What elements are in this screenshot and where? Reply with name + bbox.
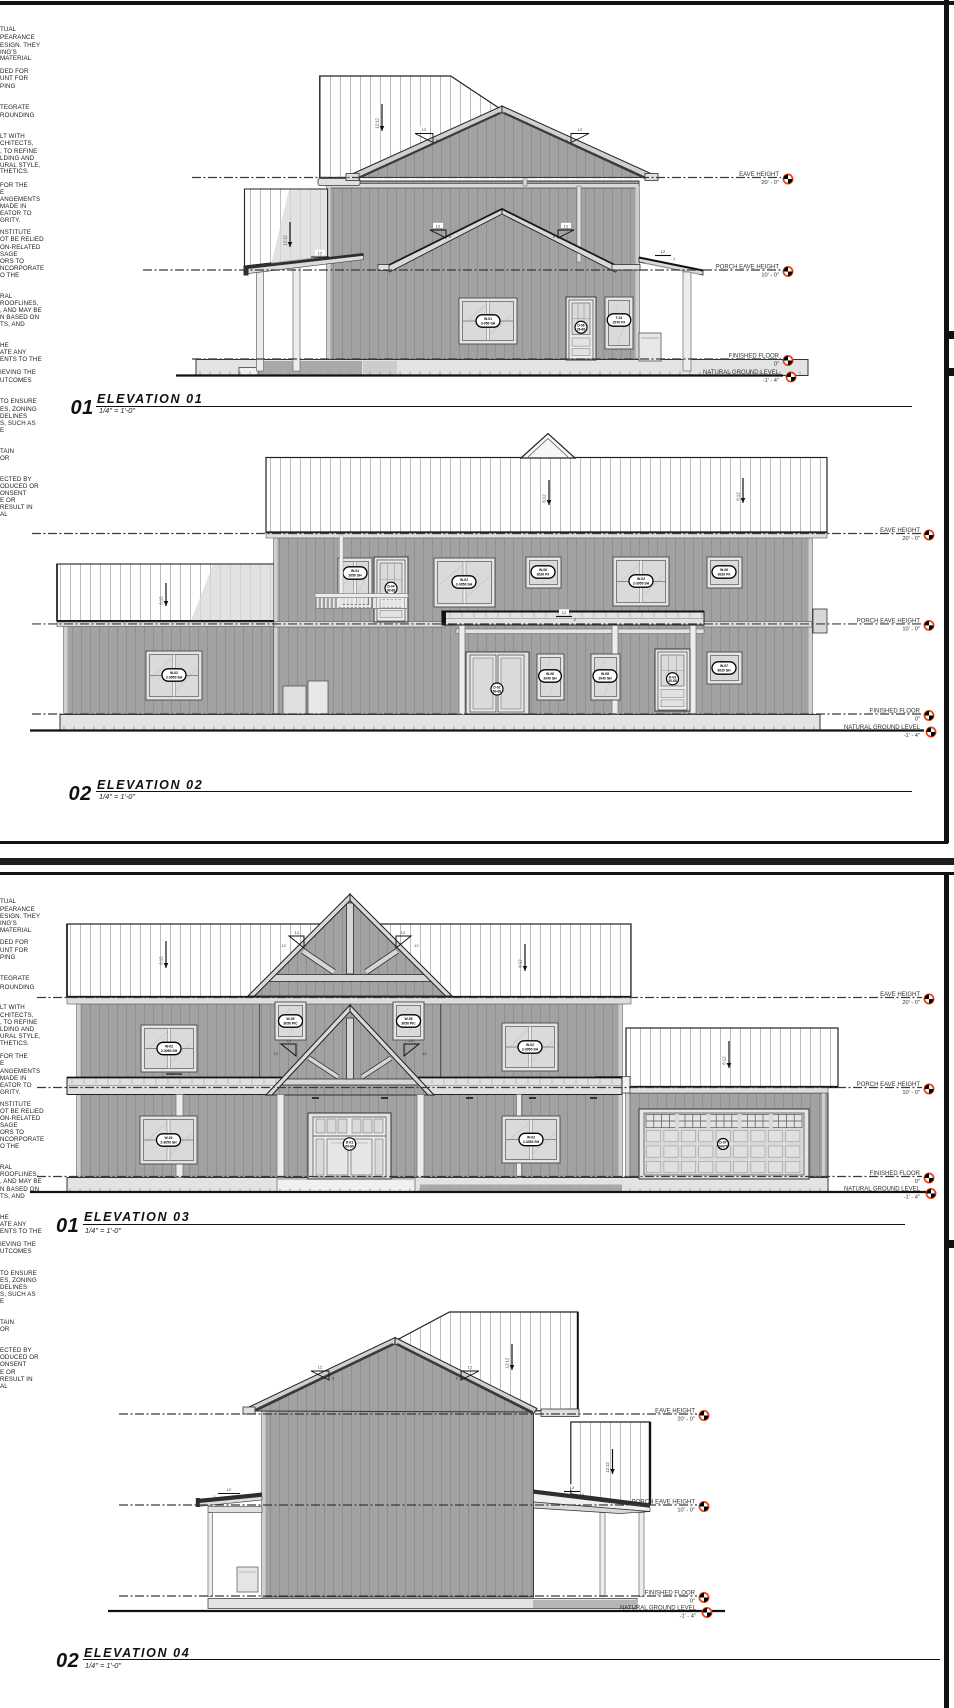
svg-text:12:12: 12:12 (505, 1357, 510, 1368)
svg-text:1: 1 (673, 257, 675, 261)
svg-text:2: 2 (582, 1493, 584, 1497)
svg-text:3050 PIC: 3050 PIC (283, 1022, 298, 1026)
svg-text:3050 PIC: 3050 PIC (401, 1022, 416, 1026)
svg-text:16070: 16070 (718, 1144, 727, 1148)
svg-text:EAVE HEIGHT: EAVE HEIGHT (655, 1408, 695, 1414)
svg-text:3020 FX: 3020 FX (537, 573, 551, 577)
svg-text:FINISHED FLOOR: FINISHED FLOOR (729, 353, 780, 359)
svg-text:EAVE HEIGHT: EAVE HEIGHT (880, 528, 920, 534)
svg-text:6:12: 6:12 (736, 492, 741, 501)
svg-text:10' - 0": 10' - 0" (761, 272, 779, 278)
svg-text:12: 12 (287, 1038, 292, 1043)
svg-text:12: 12 (273, 1051, 278, 1056)
svg-text:2-3050 SH: 2-3050 SH (160, 1141, 177, 1145)
svg-text:PORCH EAVE HEIGHT: PORCH EAVE HEIGHT (857, 618, 921, 624)
svg-text:6:12: 6:12 (542, 494, 547, 503)
svg-text:12: 12 (564, 223, 569, 228)
svg-text:2-3050 SH: 2-3050 SH (633, 582, 650, 586)
svg-text:-1' - 4": -1' - 4" (904, 1194, 920, 1200)
svg-text:6: 6 (456, 1377, 458, 1381)
svg-text:2070 FX: 2070 FX (613, 321, 627, 325)
svg-text:W-02: W-02 (526, 1043, 534, 1047)
svg-text:0": 0" (690, 1598, 695, 1604)
svg-text:W-08: W-08 (546, 672, 554, 676)
svg-text:12: 12 (281, 943, 286, 948)
svg-text:2-3050 SH: 2-3050 SH (522, 1048, 539, 1052)
svg-text:60-68: 60-68 (493, 689, 502, 693)
svg-text:6:12: 6:12 (159, 596, 164, 605)
svg-text:W-02: W-02 (527, 1136, 535, 1140)
svg-text:FINISHED FLOOR: FINISHED FLOOR (645, 1590, 696, 1596)
svg-text:12: 12 (436, 223, 441, 228)
svg-text:26-68: 26-68 (577, 328, 586, 332)
svg-text:W-01: W-01 (484, 317, 492, 321)
svg-text:6:12: 6:12 (159, 956, 164, 965)
svg-text:W-08: W-08 (601, 672, 609, 676)
svg-text:2050 SH: 2050 SH (348, 574, 362, 578)
svg-text:2-3050 SH: 2-3050 SH (161, 1049, 178, 1053)
svg-text:10' - 0": 10' - 0" (902, 626, 920, 632)
svg-text:NATURAL GROUND LEVEL: NATURAL GROUND LEVEL (620, 1605, 697, 1611)
svg-text:FINISHED FLOOR: FINISHED FLOOR (870, 1171, 921, 1177)
svg-text:12: 12 (661, 249, 666, 254)
svg-text:12:12: 12:12 (375, 118, 380, 129)
svg-text:3-050 SH: 3-050 SH (481, 322, 496, 326)
svg-text:2: 2 (307, 259, 309, 263)
svg-text:12: 12 (422, 1051, 427, 1056)
svg-text:PORCH EAVE HEIGHT: PORCH EAVE HEIGHT (716, 264, 780, 270)
svg-text:W-02: W-02 (164, 1136, 172, 1140)
svg-text:W-02: W-02 (165, 1045, 173, 1049)
svg-text:6:12: 6:12 (518, 959, 523, 968)
svg-text:-1' - 4": -1' - 4" (904, 733, 920, 739)
svg-text:2-3050 SH: 2-3050 SH (456, 583, 473, 587)
svg-text:10' - 0": 10' - 0" (902, 1090, 920, 1096)
svg-text:60-80: 60-80 (345, 1144, 354, 1148)
svg-text:NATURAL GROUND LEVEL: NATURAL GROUND LEVEL (844, 725, 921, 731)
svg-text:2: 2 (162, 1076, 164, 1080)
svg-text:W-06: W-06 (720, 568, 728, 572)
svg-text:W-05: W-05 (404, 1017, 412, 1021)
svg-text:20' - 0": 20' - 0" (902, 1000, 920, 1006)
svg-text:12: 12 (578, 127, 583, 132)
svg-text:12: 12 (295, 930, 300, 935)
svg-text:T-01: T-01 (616, 316, 623, 320)
svg-text:12: 12 (409, 1038, 414, 1043)
svg-text:6: 6 (449, 235, 451, 239)
svg-text:NATURAL GROUND LEVEL: NATURAL GROUND LEVEL (703, 370, 780, 376)
svg-text:W-02: W-02 (460, 578, 468, 582)
svg-text:2040 SH: 2040 SH (598, 677, 612, 681)
svg-text:PORCH EAVE HEIGHT: PORCH EAVE HEIGHT (857, 1082, 921, 1088)
svg-text:12:12: 12:12 (283, 235, 288, 246)
svg-text:20' - 0": 20' - 0" (761, 180, 779, 186)
svg-text:3020 FX: 3020 FX (718, 573, 732, 577)
svg-text:FINISHED FLOOR: FINISHED FLOOR (870, 708, 921, 714)
svg-text:12: 12 (570, 1485, 575, 1490)
svg-text:12:12: 12:12 (605, 1462, 610, 1473)
svg-text:W-02: W-02 (170, 671, 178, 675)
svg-text:12: 12 (562, 610, 567, 615)
svg-text:PORCH EAVE HEIGHT: PORCH EAVE HEIGHT (632, 1499, 696, 1505)
svg-text:W-07: W-07 (720, 664, 728, 668)
svg-text:-1' - 4": -1' - 4" (763, 378, 779, 384)
svg-text:6: 6 (436, 139, 438, 143)
svg-text:0": 0" (915, 1179, 920, 1185)
svg-text:30-68: 30-68 (668, 679, 677, 683)
svg-text:6:12: 6:12 (722, 1056, 727, 1065)
svg-text:20' - 0": 20' - 0" (902, 536, 920, 542)
svg-text:EAVE HEIGHT: EAVE HEIGHT (880, 992, 920, 998)
svg-text:W-04: W-04 (351, 569, 359, 573)
svg-text:12: 12 (401, 930, 406, 935)
svg-text:2: 2 (574, 618, 576, 622)
svg-text:6: 6 (566, 139, 568, 143)
svg-text:2-3050 SH: 2-3050 SH (166, 676, 183, 680)
svg-text:12: 12 (468, 1364, 473, 1369)
svg-text:12: 12 (227, 1487, 232, 1492)
svg-text:0": 0" (915, 716, 920, 722)
svg-text:2040 SH: 2040 SH (543, 677, 557, 681)
svg-text:12: 12 (422, 127, 427, 132)
svg-text:2-3050 SH: 2-3050 SH (523, 1140, 540, 1144)
svg-text:W-02: W-02 (637, 577, 645, 581)
svg-text:NATURAL GROUND LEVEL: NATURAL GROUND LEVEL (844, 1186, 921, 1192)
svg-text:0": 0" (774, 361, 779, 367)
svg-text:6: 6 (553, 235, 555, 239)
svg-text:6: 6 (332, 1377, 334, 1381)
svg-text:12: 12 (318, 250, 323, 255)
svg-text:12: 12 (318, 1364, 323, 1369)
svg-text:3020 SH: 3020 SH (717, 669, 731, 673)
svg-text:W-05: W-05 (286, 1017, 294, 1021)
svg-text:10' - 0": 10' - 0" (677, 1507, 695, 1513)
svg-text:12: 12 (414, 943, 419, 948)
svg-text:W-06: W-06 (539, 568, 547, 572)
svg-text:EAVE HEIGHT: EAVE HEIGHT (739, 172, 779, 178)
svg-text:1: 1 (214, 1495, 216, 1499)
svg-text:-1' - 4": -1' - 4" (680, 1613, 696, 1619)
svg-text:30-68: 30-68 (387, 589, 396, 593)
svg-text:20' - 0": 20' - 0" (677, 1416, 695, 1422)
